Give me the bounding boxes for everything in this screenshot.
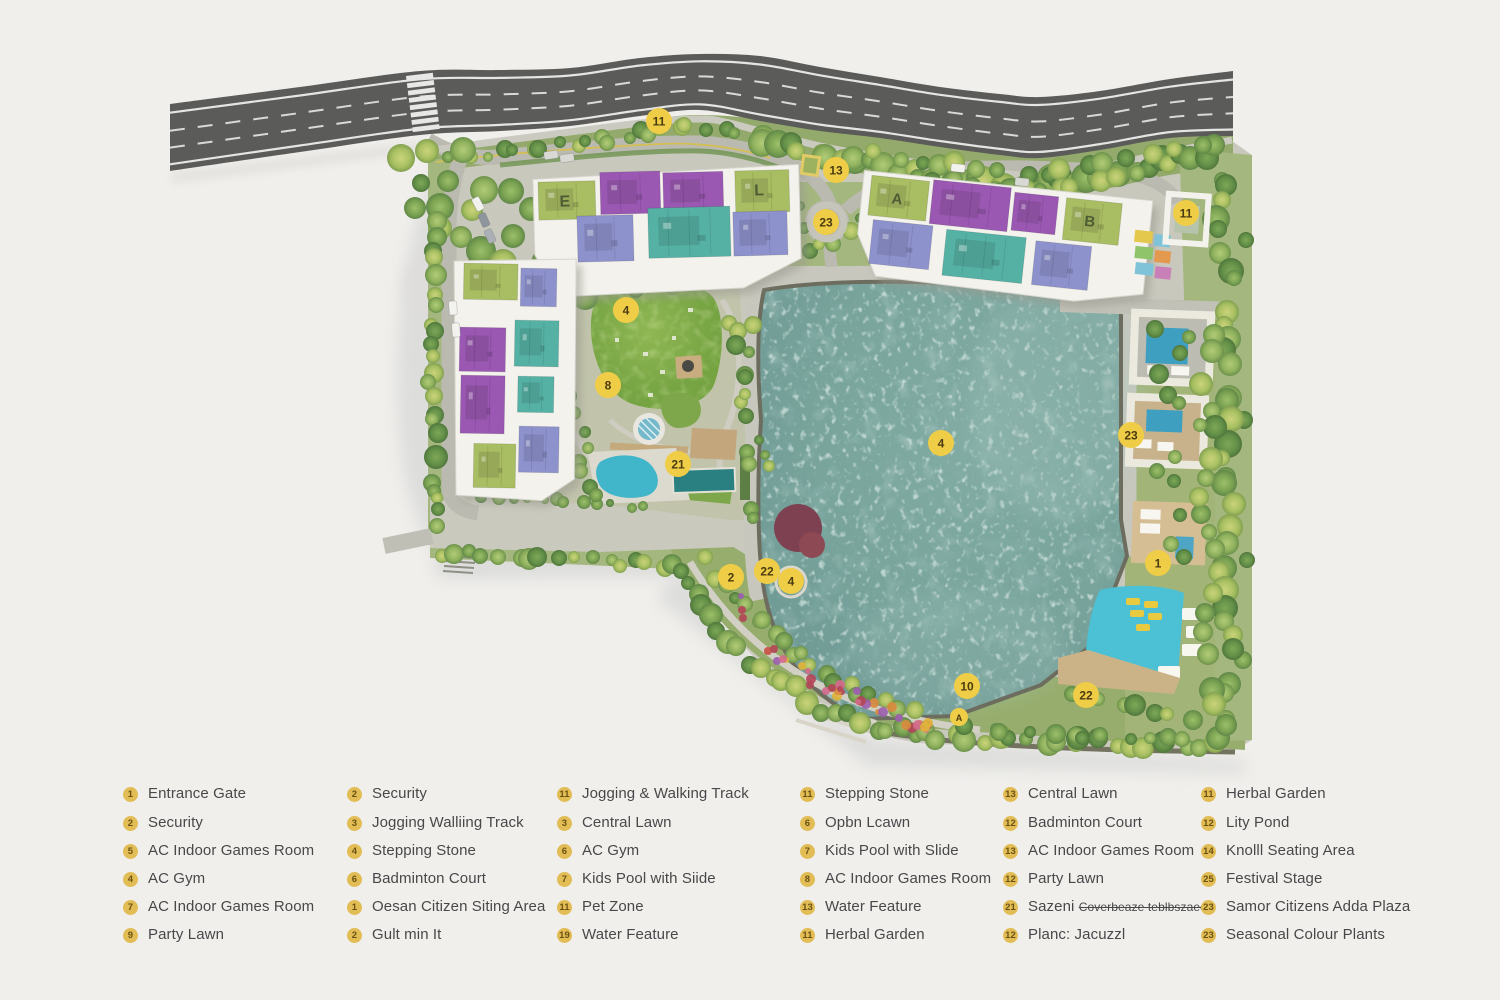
svg-text:A: A bbox=[891, 190, 904, 208]
svg-text:A: A bbox=[956, 713, 963, 723]
svg-text:11: 11 bbox=[653, 115, 666, 129]
svg-text:E: E bbox=[559, 193, 570, 210]
svg-text:L: L bbox=[754, 182, 764, 199]
svg-text:23: 23 bbox=[819, 216, 833, 230]
svg-text:10: 10 bbox=[960, 680, 974, 694]
svg-text:23: 23 bbox=[1124, 429, 1138, 443]
svg-text:1: 1 bbox=[1155, 557, 1162, 571]
svg-text:4: 4 bbox=[623, 304, 630, 318]
svg-text:13: 13 bbox=[829, 164, 843, 178]
svg-text:21: 21 bbox=[671, 458, 685, 472]
svg-text:4: 4 bbox=[938, 437, 945, 451]
svg-text:4: 4 bbox=[788, 575, 795, 589]
svg-text:22: 22 bbox=[760, 565, 774, 579]
svg-text:2: 2 bbox=[728, 571, 735, 585]
svg-text:22: 22 bbox=[1079, 689, 1093, 703]
svg-text:8: 8 bbox=[605, 379, 612, 393]
svg-text:11: 11 bbox=[1180, 207, 1193, 221]
svg-text:B: B bbox=[1083, 213, 1096, 231]
